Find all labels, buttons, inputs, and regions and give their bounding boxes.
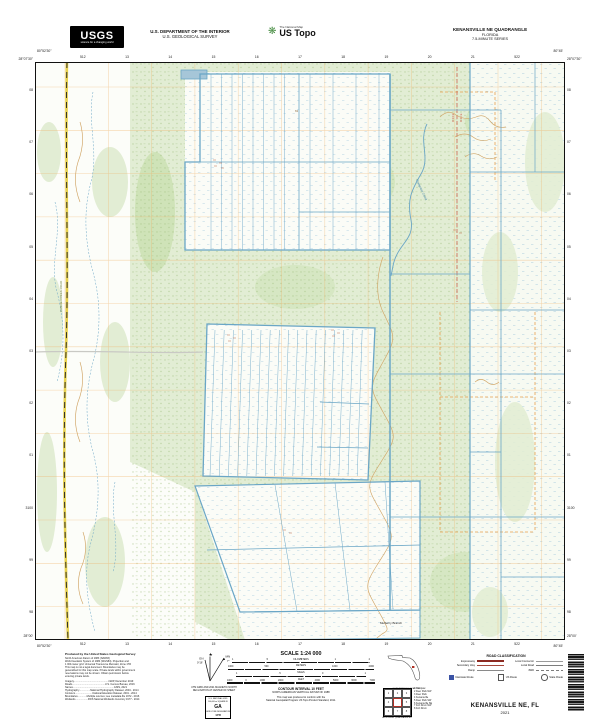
grid-tick-label: 16 [255, 55, 259, 59]
usgs-tagline: science for a changing world [81, 41, 114, 44]
grid-tick-label: 03 [29, 349, 33, 353]
quadrangle-marker [412, 666, 414, 668]
standard-note: This map was produced to conform with th… [226, 696, 376, 702]
credit-line: entering private lands. [65, 675, 187, 678]
sheet-title-block: KENANSVILLE NE, FL 2021 [440, 703, 570, 715]
grid-tick-label: 21 [471, 55, 475, 59]
road-classification-legend: ROAD CLASSIFICATION Expressway Secondary… [449, 654, 563, 681]
scale-bar-line [227, 682, 375, 684]
legend-row-ramp: Ramp [449, 669, 504, 672]
scale-tick: 2000 [369, 666, 374, 669]
state-route-item: State Route [541, 674, 563, 681]
scale-tick: 500 [264, 666, 268, 669]
road-class-title: ROAD CLASSIFICATION [449, 654, 563, 658]
scale-bar-meters: 1000500010002000METERS [228, 666, 374, 670]
production-credits: Produced by the United States Geological… [65, 653, 187, 701]
grid-tick-label: 98 [567, 610, 571, 614]
us-route-shield-icon [498, 674, 504, 680]
grid-tick-label: 17 [298, 642, 302, 646]
grid-tick-label: 04 [567, 297, 571, 301]
grid-tick-label: 98 [29, 610, 33, 614]
grid-tick-label: 03 [567, 349, 571, 353]
scale-bar-miles: 1.501MILES [236, 673, 366, 677]
scale-tick: 1 [232, 659, 233, 662]
grid-tick-label: 01 [29, 453, 33, 457]
scale-unit-label: FEET [296, 679, 306, 682]
scale-title: SCALE 1:24 000 [226, 651, 376, 657]
grid-tick-label: 05 [29, 245, 33, 249]
corner-top-right-lat: 28°07'30" [567, 57, 582, 61]
grid-tick-label: 02 [567, 401, 571, 405]
legend-row-4wd: 4WD [508, 669, 563, 672]
scale-tick: 2 [369, 659, 370, 662]
adjoining-cell: 8 [402, 707, 411, 716]
scale-tick: 1000 [228, 666, 233, 669]
scale-tick: 1 [335, 659, 336, 662]
scale-bar-line [232, 662, 370, 664]
true-north-star-icon: ★ [209, 652, 214, 657]
legend-row-expressway: Expressway [449, 660, 504, 663]
sheet-year: 2021 [440, 710, 570, 715]
corner-top-right-lon: 80°45' [460, 49, 563, 53]
grid-tick-label: 04 [29, 297, 33, 301]
scale-tick: .5 [266, 659, 268, 662]
national-map-icon: ❋ [268, 27, 276, 37]
grid-tick-label: 05 [567, 245, 571, 249]
scale-tick: 1000 [332, 666, 337, 669]
grid-tick-label: 14 [168, 55, 172, 59]
legend-row-local-road: Local Road [508, 664, 563, 667]
expressway-line-sample [477, 660, 504, 662]
scale-unit-label: KILOMETERS [291, 659, 310, 662]
agency-line2: U.S. GEOLOGICAL SURVEY [130, 34, 250, 39]
grid-tick-label: 06 [29, 192, 33, 196]
corner-bottom-left-lat: 28°00' [0, 634, 33, 638]
utm-northing-labels-left: 080706050403020131009998 [18, 62, 33, 640]
utm-northing-labels-right: 080706050403020131009998 [567, 62, 582, 640]
grid-tick-label: 99 [29, 558, 33, 562]
grid-tick-label: 20 [428, 642, 432, 646]
scale-unit-label: METERS [294, 665, 308, 668]
corner-top-left-lon: 80°52'30" [37, 49, 52, 53]
grid-north-label: GN [199, 657, 204, 661]
grid-tick-label: 15 [212, 55, 216, 59]
scale-tick: 6000 [351, 680, 356, 683]
florida-outline [387, 652, 425, 682]
secondary-line-sample [477, 665, 504, 666]
agency-title: U.S. DEPARTMENT OF THE INTERIOR U.S. GEO… [130, 29, 250, 40]
corner-bottom-right-lon: 80°45' [460, 644, 563, 648]
usgs-topo-sheet: USGS science for a changing world U.S. D… [0, 0, 600, 725]
scale-tick: 2000 [278, 680, 283, 683]
local-connector-line-sample [536, 661, 563, 662]
corner-bottom-right-lat: 28°00' [567, 634, 577, 638]
range-label-left: R 34 E [451, 113, 455, 122]
scale-bars: 1.5012KILOMETERS1000500010002000METERS1.… [226, 659, 376, 684]
road-name-label: CANOE CREEK ROAD [59, 280, 63, 312]
source-line: Wetlands..................FWS National W… [65, 698, 187, 701]
grid-tick-label: 14 [168, 642, 172, 646]
grid-tick-label: 01 [567, 453, 571, 457]
grid-tick-label: 07 [29, 140, 33, 144]
metadata-barcode [568, 654, 584, 711]
grid-tick-label: 13 [125, 642, 129, 646]
interstate-shield-icon [449, 675, 454, 680]
adjoining-caption: ADJOINING QUADRANGLES [371, 717, 423, 719]
map-area: R 34 E R 35 E [35, 62, 565, 640]
adjoining-cell: 6 [384, 707, 393, 716]
adjoining-quadrangle-grid: 12345678 [383, 688, 412, 717]
scale-unit-label: MILES [295, 672, 306, 675]
usng-square-id: GA [206, 705, 230, 710]
grid-tick-label: 02 [29, 401, 33, 405]
scale-tick: 5000 [333, 680, 338, 683]
adjoining-cell: 3 [402, 689, 411, 698]
grid-tick-label: 06 [567, 192, 571, 196]
adjoining-cell: 5 [402, 698, 411, 707]
us-route-item: US Route [498, 674, 517, 681]
scale-tick: .5 [279, 673, 281, 676]
grid-tick-label: 512 [80, 55, 86, 59]
interstate-route-item: Interstate Route [449, 674, 474, 681]
scale-tick: 7000 [370, 680, 375, 683]
scale-block: SCALE 1:24 000 1.5012KILOMETERS100050001… [226, 651, 376, 702]
topo-map-graphic: R 34 E R 35 E [35, 62, 565, 640]
quadrangle-title: KENANSVILLE NE QUADRANGLE FLORIDA 7.5-MI… [415, 27, 565, 42]
legend-row-local-connector: Local Connector [508, 660, 563, 663]
grid-tick-label: 13 [125, 55, 129, 59]
ramp-line-sample [477, 670, 504, 671]
grid-tick-label: 522 [514, 55, 520, 59]
grid-north-value: 0°16' [197, 661, 203, 665]
grid-tick-label: 20 [428, 55, 432, 59]
grid-tick-label: 3100 [25, 506, 33, 510]
usng-zone: 17R [206, 714, 230, 717]
adjoining-cell: 1 [384, 689, 393, 698]
adjoining-quadrangle-list: 1 Holopaw2 Deer Park NW3 Deer Park4 Kena… [414, 688, 432, 711]
usgs-logo-text: USGS [80, 31, 113, 41]
scale-bar-feet: 100001000200030004000500060007000FEET [227, 680, 375, 684]
spot-elevation-label: 63 [295, 109, 299, 113]
grid-tick-label: 99 [567, 558, 571, 562]
branch-name-label: Mulberry Branch [380, 621, 402, 625]
scale-tick: 1 [365, 673, 366, 676]
ustopo-label: US Topo [279, 29, 315, 38]
scale-bar-line [228, 669, 374, 671]
adjoining-cell: 7 [393, 707, 402, 716]
scale-tick: 4000 [315, 680, 320, 683]
corner-bottom-left-lon: 80°52'30" [37, 644, 52, 648]
adjoining-name: 8 Fort Drum [414, 708, 432, 711]
local-road-line-sample [536, 665, 563, 666]
grid-tick-label: 08 [567, 88, 571, 92]
adjoining-cell: 2 [393, 689, 402, 698]
quad-series: 7.5-MINUTE SERIES [415, 37, 565, 42]
scale-tick: 1000 [260, 680, 265, 683]
grid-tick-label: 512 [80, 642, 86, 646]
grid-tick-label: 08 [29, 88, 33, 92]
state-location-inset: QUADRANGLE LOCATION [385, 652, 427, 690]
contour-note: CONTOUR INTERVAL 10 FEET NORTH AMERICAN … [226, 687, 376, 694]
scale-tick: 1 [236, 673, 237, 676]
this-quadrangle-cell [393, 698, 402, 707]
scale-tick: 1000 [227, 680, 232, 683]
usgs-logo: USGS science for a changing world [70, 26, 124, 48]
corner-top-left-lat: 28°07'30" [0, 57, 33, 61]
ustopo-logo: ❋ The National Map US Topo [268, 26, 316, 38]
grid-tick-label: 07 [567, 140, 571, 144]
grid-tick-label: 18 [341, 55, 345, 59]
scale-tick: 0 [245, 680, 246, 683]
legend-row-secondary: Secondary Hwy [449, 664, 504, 667]
grid-tick-label: 19 [385, 55, 389, 59]
adjoining-cell: 4 [384, 698, 393, 707]
grid-tick-label: 15 [212, 642, 216, 646]
grid-tick-label: 18 [341, 642, 345, 646]
scale-bar-kilometers: 1.5012KILOMETERS [232, 659, 370, 663]
sheet-name: KENANSVILLE NE, FL [440, 703, 570, 709]
fourwd-line-sample [536, 670, 563, 671]
grid-tick-label: 3100 [567, 506, 575, 510]
grid-tick-label: 17 [298, 55, 302, 59]
grid-tick-label: 16 [255, 642, 259, 646]
grid-tick-label: 19 [385, 642, 389, 646]
data-sources-list: Imagery.................................… [65, 680, 187, 701]
scale-tick: 0 [322, 673, 323, 676]
utm-easting-labels-top: 512131415161718192021522 [35, 55, 565, 59]
state-route-shield-icon [541, 674, 548, 681]
scale-bar-line [236, 676, 366, 678]
produced-by-body: North American Datum of 1983 (NAD83)Worl… [65, 657, 187, 678]
